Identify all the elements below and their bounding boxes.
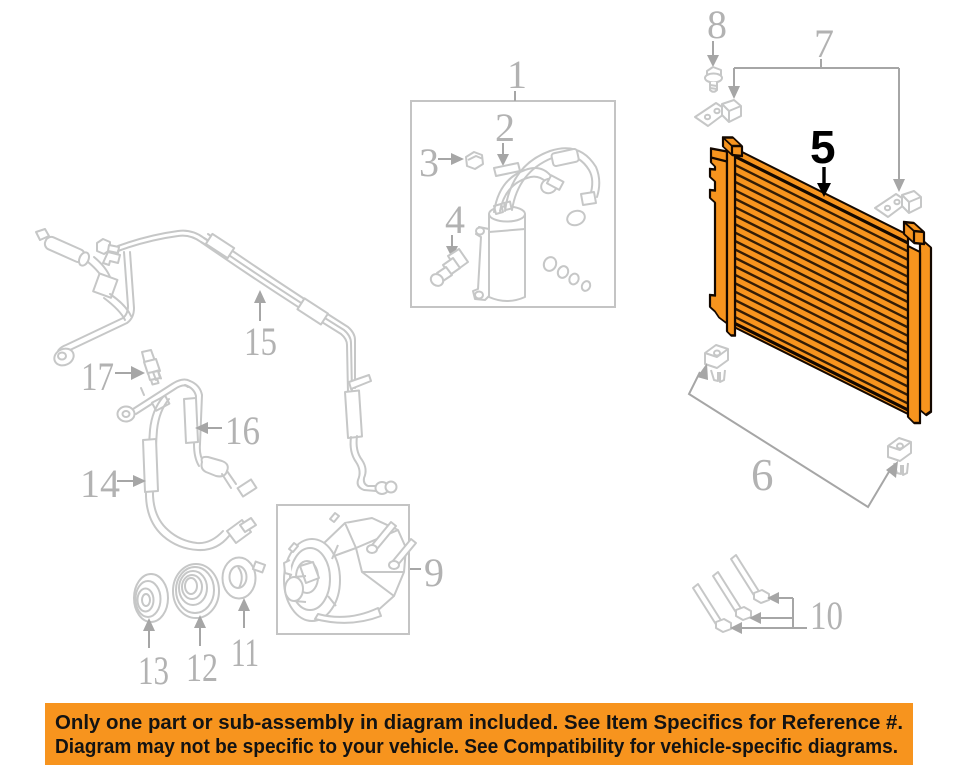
svg-text:1: 1 — [507, 52, 527, 97]
svg-text:11: 11 — [231, 630, 259, 675]
svg-text:10: 10 — [810, 593, 843, 638]
svg-text:16: 16 — [225, 408, 260, 453]
svg-text:14: 14 — [80, 461, 120, 506]
svg-text:Diagram may not be specific to: Diagram may not be specific to your vehi… — [55, 736, 898, 758]
svg-text:9: 9 — [424, 550, 444, 595]
svg-text:6: 6 — [751, 450, 774, 500]
svg-text:7: 7 — [814, 21, 834, 66]
svg-text:17: 17 — [81, 354, 114, 399]
svg-text:4: 4 — [445, 197, 465, 242]
svg-text:8: 8 — [707, 2, 727, 47]
svg-text:15: 15 — [244, 319, 277, 364]
svg-text:12: 12 — [186, 645, 218, 690]
svg-text:2: 2 — [495, 105, 515, 150]
svg-text:Only one part or sub-assembly: Only one part or sub-assembly in diagram… — [55, 712, 903, 734]
svg-text:3: 3 — [419, 140, 439, 185]
svg-text:5: 5 — [810, 121, 836, 173]
svg-text:13: 13 — [138, 648, 169, 693]
